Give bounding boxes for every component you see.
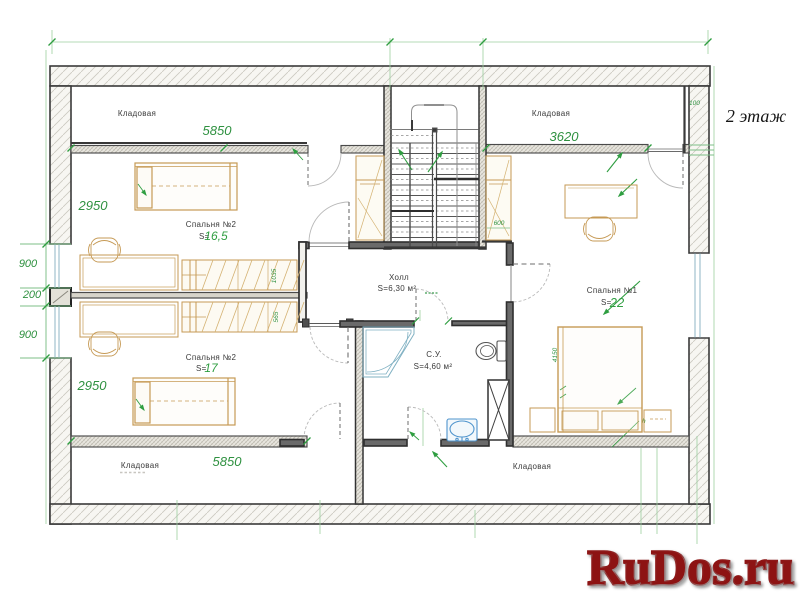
svg-text:RuDos.ru: RuDos.ru — [588, 539, 795, 595]
svg-text:2950: 2950 — [78, 198, 109, 213]
svg-text:565: 565 — [273, 311, 280, 322]
svg-text:5850: 5850 — [213, 454, 243, 469]
svg-text:С.У.: С.У. — [426, 350, 441, 359]
svg-text:5850: 5850 — [203, 123, 233, 138]
svg-text:Кладовая: Кладовая — [118, 109, 156, 118]
svg-text:Кладовая: Кладовая — [532, 109, 570, 118]
svg-text:22: 22 — [609, 295, 625, 310]
svg-text:17: 17 — [204, 361, 219, 375]
svg-text:Кладовая: Кладовая — [513, 462, 551, 471]
svg-text:1035: 1035 — [271, 268, 278, 283]
svg-text:900: 900 — [19, 329, 38, 341]
svg-text:200: 200 — [22, 289, 42, 301]
svg-text:3620: 3620 — [550, 129, 580, 144]
svg-text:16,5: 16,5 — [204, 229, 228, 243]
svg-text:Спальня №2: Спальня №2 — [186, 220, 237, 229]
svg-text:2950: 2950 — [77, 378, 108, 393]
svg-text:4150: 4150 — [552, 347, 559, 362]
svg-text:Спальня №1: Спальня №1 — [587, 286, 638, 295]
svg-text:100: 100 — [689, 100, 700, 107]
svg-text:900: 900 — [19, 258, 38, 270]
svg-text:S=4,60 м²: S=4,60 м² — [414, 362, 453, 371]
svg-text:2 этаж: 2 этаж — [726, 106, 786, 126]
svg-text:S=6,30 м²: S=6,30 м² — [378, 284, 417, 293]
svg-text:Холл: Холл — [389, 273, 409, 282]
svg-text:Кладовая: Кладовая — [121, 461, 159, 470]
svg-text:600: 600 — [494, 220, 505, 227]
